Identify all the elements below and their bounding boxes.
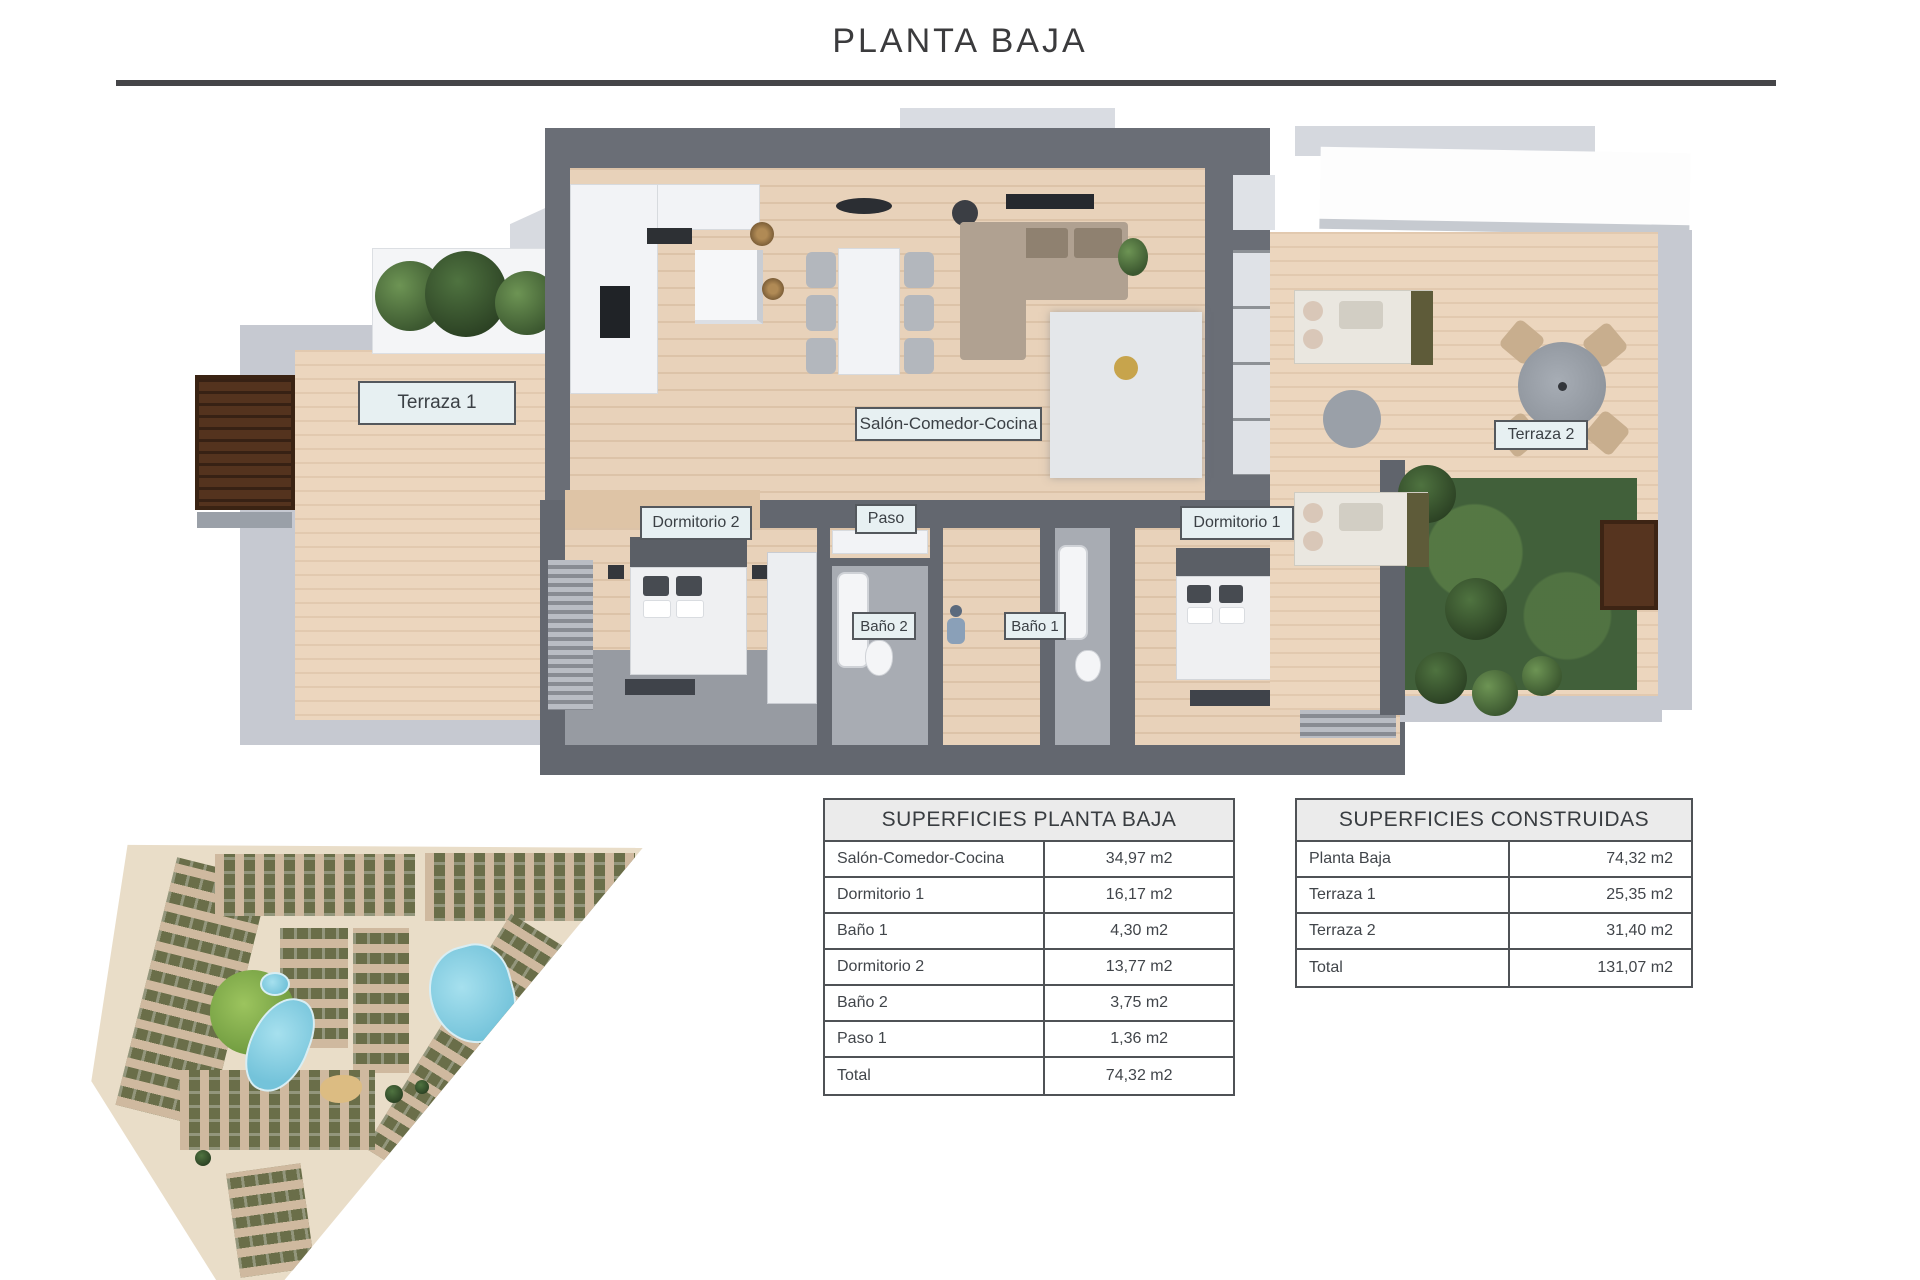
row-value: 4,30 m2 [1045,914,1233,948]
living-rug [1050,312,1202,478]
terraza1-step [197,512,292,528]
row-label: Dormitorio 2 [825,950,1045,984]
toilet-icon [1075,650,1101,682]
table-row: Total 131,07 m2 [1297,950,1691,986]
table-title: SUPERFICIES PLANTA BAJA [825,800,1233,842]
pillow [676,600,704,618]
row-value: 74,32 m2 [1510,842,1691,876]
dining-chair [806,338,836,374]
kitchen-island [695,250,763,324]
sofa-chaise [960,222,1026,360]
table-row: Planta Baja 74,32 m2 [1297,842,1691,878]
pillow [1219,607,1245,624]
door-icon [1600,520,1658,610]
table-title: SUPERFICIES CONSTRUIDAS [1297,800,1691,842]
row-label: Salón-Comedor-Cocina [825,842,1045,876]
table-center [1558,382,1567,391]
room-label-dormitorio1: Dormitorio 1 [1180,506,1294,540]
plant-icon [1415,652,1467,704]
page-title: PLANTA BAJA [0,22,1920,61]
salon-top-wall [545,128,1270,168]
row-label: Dormitorio 1 [825,878,1045,912]
dining-lamp-icon [836,198,892,214]
salon-left-wall [545,128,570,520]
row-value: 13,77 m2 [1045,950,1233,984]
site-tree-icon [385,1085,403,1103]
tv-icon [1006,194,1094,209]
pillow [1187,585,1211,603]
table-superficies-planta-baja: SUPERFICIES PLANTA BAJA Salón-Comedor-Co… [823,798,1235,1096]
patio-table [1518,342,1606,430]
site-tree-icon [195,1150,211,1166]
lounge-pillow [1303,329,1323,349]
table-row: Baño 1 4,30 m2 [825,914,1233,950]
table-row: Terraza 2 31,40 m2 [1297,914,1691,950]
plant-icon [1118,238,1148,276]
table-row: Paso 1 1,36 m2 [825,1022,1233,1058]
room-label-dormitorio2: Dormitorio 2 [640,506,752,540]
pillow [1219,585,1243,603]
table-row: Terraza 1 25,35 m2 [1297,878,1691,914]
lounge-pillow [1303,531,1323,551]
glass-door-icon [1233,250,1275,475]
pillow [643,576,669,596]
site-pool [260,972,290,996]
lounge-pillow [1303,503,1323,523]
pendant-lamp-icon [762,278,784,300]
room-label-bano2: Baño 2 [852,612,916,640]
site-tree-icon [335,1255,351,1271]
pillow [1187,607,1213,624]
toilet-icon [865,640,893,676]
cooktop [647,228,692,244]
room-label-paso: Paso [855,504,917,534]
person-icon [947,618,965,644]
room-label-terraza2: Terraza 2 [1494,420,1588,450]
dining-chair [904,338,934,374]
nightstand [752,565,768,579]
window-icon [1233,175,1275,230]
lounge-throw [1411,291,1433,365]
bed-headboard [630,537,747,567]
table-row: Dormitorio 2 13,77 m2 [825,950,1233,986]
plant-icon [425,251,507,337]
bed [630,567,747,675]
row-label: Baño 2 [825,986,1045,1020]
row-label: Paso 1 [825,1022,1045,1056]
lounge-chair [1294,492,1428,566]
lounge-cushion [1339,301,1383,329]
site-building-row [425,853,635,921]
window-shutter-icon [195,375,295,510]
table-row: Dormitorio 1 16,17 m2 [825,878,1233,914]
room-label-bano1: Baño 1 [1004,612,1066,640]
person-icon [950,605,962,617]
site-building-row [226,1163,315,1277]
row-value: 1,36 m2 [1045,1022,1233,1056]
wardrobe [767,552,817,704]
floor-plan: Terraza 1 Salón-Comedor-Cocina Dormitori… [150,100,1710,795]
site-tree-icon [415,1080,429,1094]
site-pool [417,1192,445,1216]
pendant-lamp-icon [750,222,774,246]
room-label-salon: Salón-Comedor-Cocina [855,407,1042,441]
site-tree-icon [555,960,571,976]
site-pool [355,1183,450,1266]
title-divider-line [116,80,1776,86]
row-label: Total [825,1058,1045,1094]
plant-icon [1445,578,1507,640]
plant-icon [1522,656,1562,696]
row-label: Total [1297,950,1510,986]
dining-chair [904,295,934,331]
brochure-page: PLANTA BAJA [0,0,1920,1280]
dining-table [838,248,900,375]
pillow [643,600,671,618]
row-label: Baño 1 [825,914,1045,948]
dining-chair [904,252,934,288]
kitchen-appliance [600,286,630,338]
bedroom-rug [1190,690,1270,706]
row-value: 16,17 m2 [1045,878,1233,912]
row-label: Planta Baja [1297,842,1510,876]
rug-decor [1114,356,1138,380]
terraza2-right-wall [1658,230,1692,710]
table-row: Salón-Comedor-Cocina 34,97 m2 [825,842,1233,878]
sofa-cushion [1074,228,1122,258]
sofa-cushion [1020,228,1068,258]
lounge-cushion [1339,503,1383,531]
row-value: 25,35 m2 [1510,878,1691,912]
row-value: 31,40 m2 [1510,914,1691,948]
lounge-throw [1407,493,1429,567]
bedroom-rug [625,679,695,695]
row-value: 34,97 m2 [1045,842,1233,876]
table-row: Baño 2 3,75 m2 [825,986,1233,1022]
row-label: Terraza 1 [1297,878,1510,912]
room-label-terraza1: Terraza 1 [358,381,516,425]
row-label: Terraza 2 [1297,914,1510,948]
table-superficies-construidas: SUPERFICIES CONSTRUIDAS Planta Baja 74,3… [1295,798,1693,988]
site-building-row [215,854,415,916]
row-value: 74,32 m2 [1045,1058,1233,1094]
site-building-row [353,928,409,1073]
table-row: Total 74,32 m2 [825,1058,1233,1094]
dining-chair [806,295,836,331]
ottoman [1323,390,1381,448]
plant-icon [1472,670,1518,716]
window-blinds-icon [548,560,593,710]
lounge-chair [1294,290,1432,364]
pillow [676,576,702,596]
row-value: 131,07 m2 [1510,950,1691,986]
lounge-pillow [1303,301,1323,321]
nightstand [608,565,624,579]
row-value: 3,75 m2 [1045,986,1233,1020]
dining-chair [806,252,836,288]
terraza2-parapet [1319,147,1690,235]
site-plan [85,840,660,1280]
